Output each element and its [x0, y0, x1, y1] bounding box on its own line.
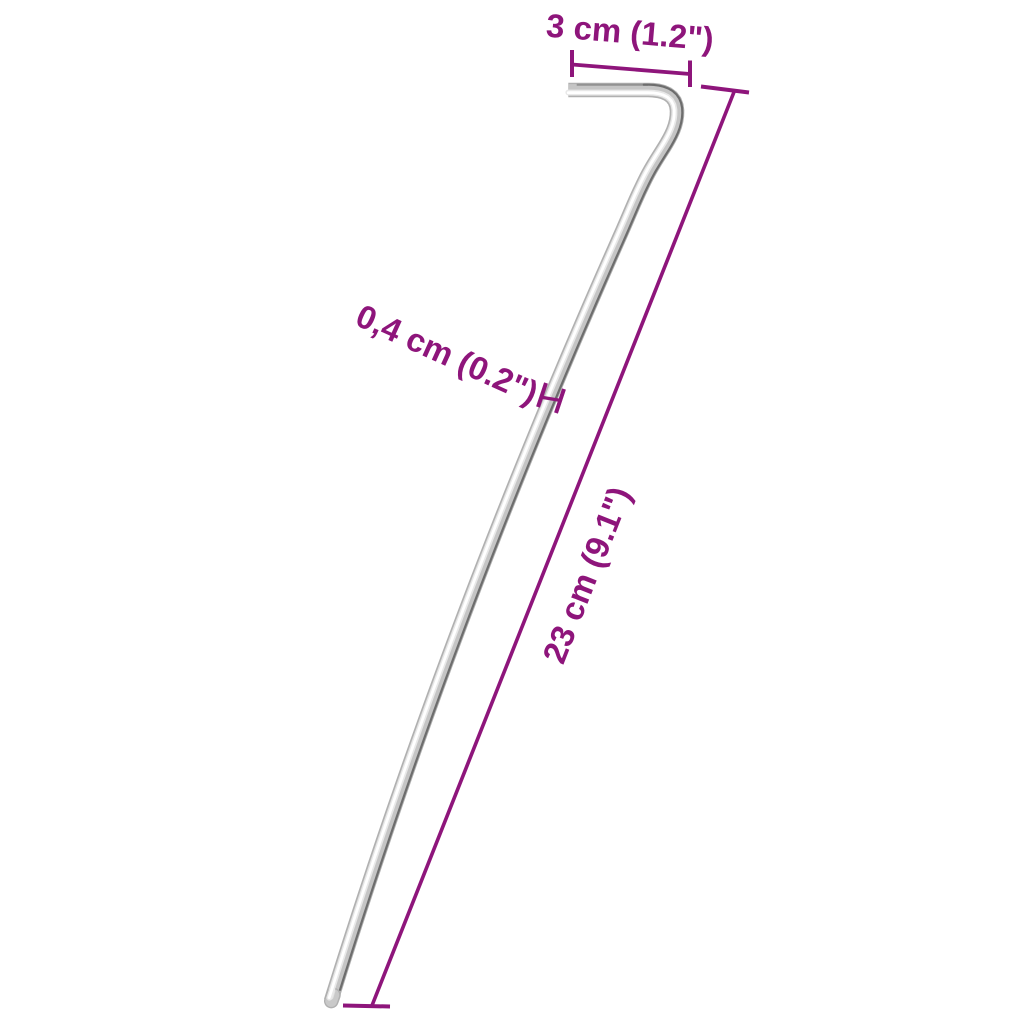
- svg-text:3 cm (1.2"): 3 cm (1.2"): [545, 7, 715, 58]
- svg-text:23 cm (9.1"): 23 cm (9.1"): [535, 481, 638, 668]
- svg-text:0,4 cm (0.2"): 0,4 cm (0.2"): [351, 297, 544, 411]
